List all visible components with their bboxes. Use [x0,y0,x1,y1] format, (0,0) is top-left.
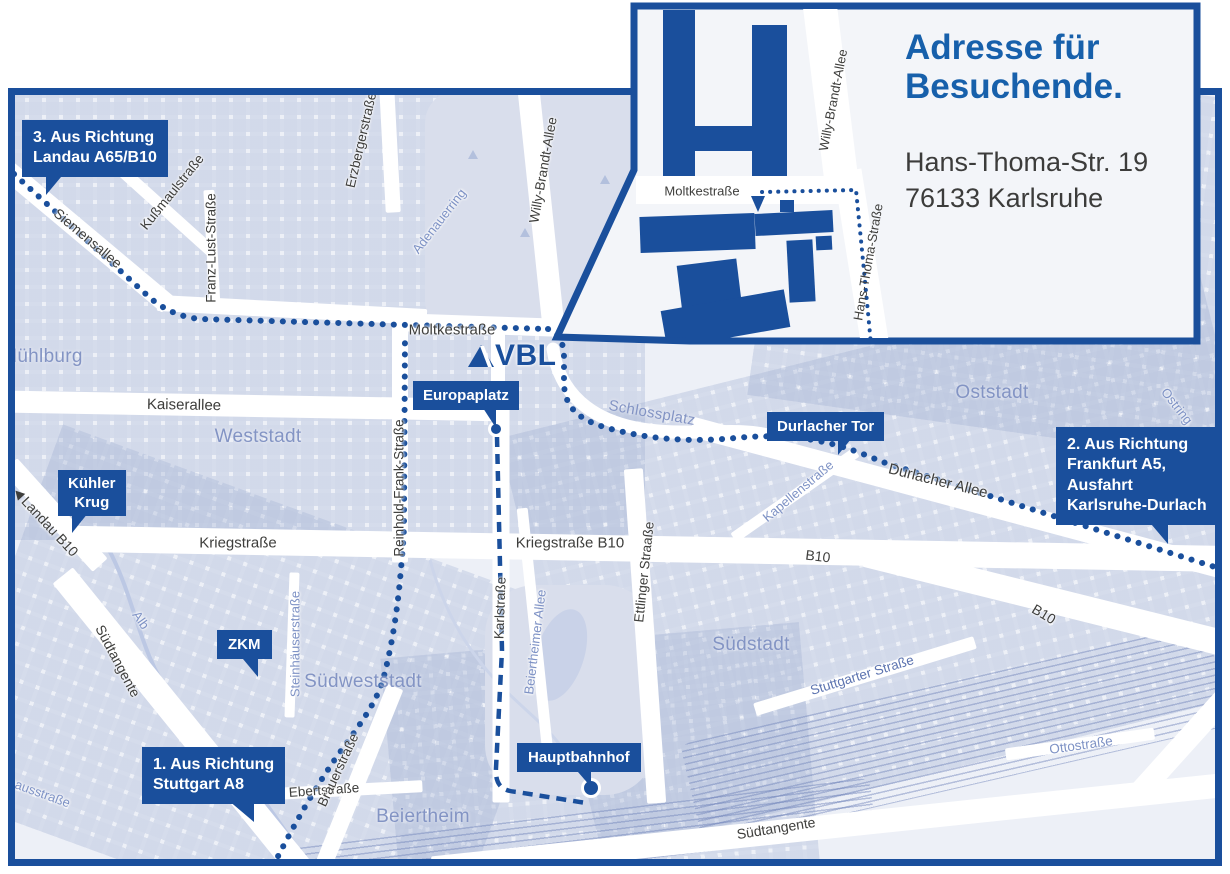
inset-title: Adresse für Besuchende. [905,28,1123,106]
city-map: Mühlburg Weststadt Oststadt Südstadt Süd… [0,0,1230,874]
inset-address-panel: Moltkestraße Willy-Brandt-Allee Hans-Tho… [0,0,1230,874]
inset-address: Hans-Thoma-Str. 19 76133 Karlsruhe [905,144,1148,217]
inset-arrow-icon [751,196,765,212]
inset-street-label-moltkestrasse: Moltkestraße [664,184,739,199]
